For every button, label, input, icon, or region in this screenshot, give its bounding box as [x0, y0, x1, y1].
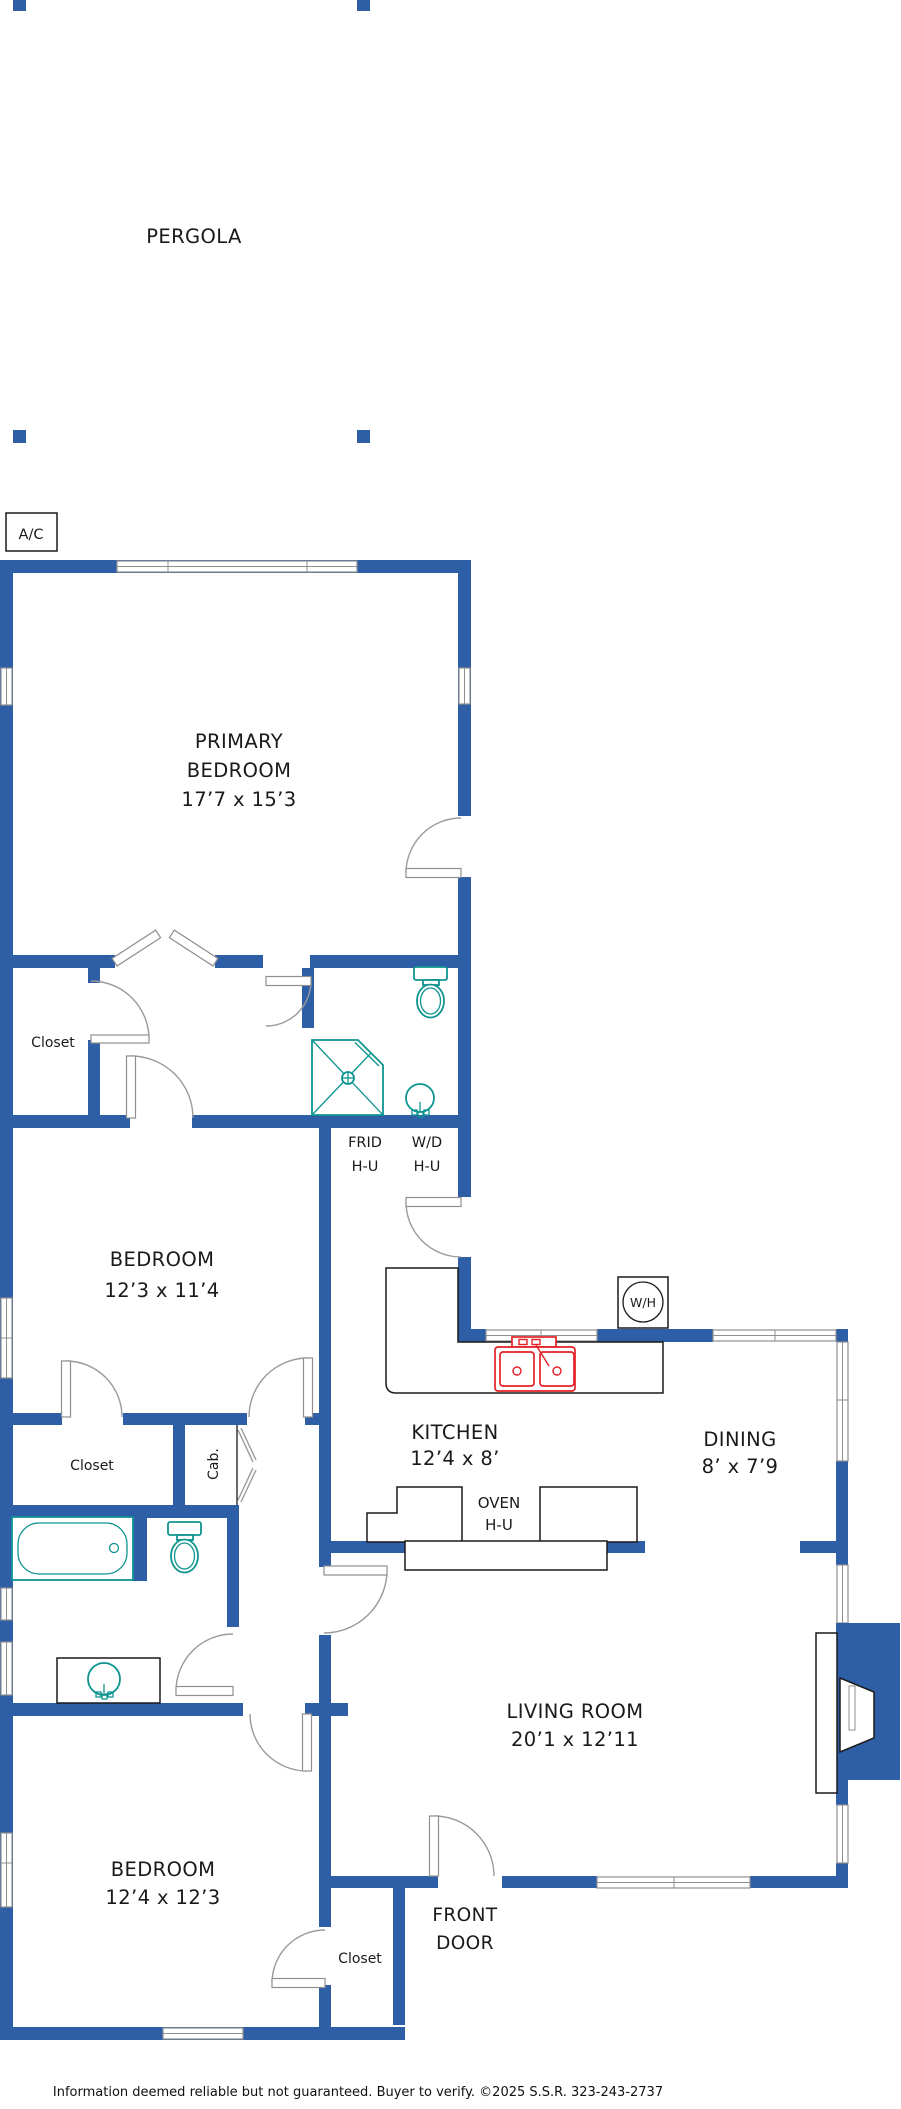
washer-dryer-hookup-label: W/D [412, 1135, 442, 1151]
window [1, 1833, 12, 1907]
window [163, 2028, 243, 2039]
cabinet-label: Cab. [206, 1448, 222, 1480]
disclaimer-text: Information deemed reliable but not guar… [53, 2085, 663, 2100]
window [1, 1642, 12, 1695]
window [1, 1588, 12, 1620]
door [272, 1930, 325, 1988]
primary-bedroom-label: PRIMARY [195, 730, 283, 753]
bathtub-icon [12, 1517, 133, 1580]
washer-dryer-hookup-label: H-U [414, 1159, 441, 1175]
living-room-dims: 20’1 x 12’11 [511, 1728, 639, 1751]
bedroom2-dims: 12’3 x 11’4 [104, 1279, 219, 1302]
dining-dims: 8’ x 7’9 [702, 1455, 779, 1478]
window [837, 1805, 848, 1863]
hall-closet-label: Closet [31, 1035, 75, 1051]
bedroom3-label: BEDROOM [111, 1858, 216, 1881]
door [249, 1358, 313, 1417]
living-room-label: LIVING ROOM [506, 1700, 643, 1723]
bedroom3-dims: 12’4 x 12’3 [105, 1886, 220, 1909]
door [406, 1198, 461, 1258]
primary-bedroom-dims: 17’7 x 15’3 [181, 788, 296, 811]
window [597, 1877, 750, 1888]
primary-bedroom-label: BEDROOM [187, 759, 292, 782]
door [250, 1714, 312, 1771]
labels: PERGOLA A/C PRIMARY BEDROOM 17’7 x 15’3 … [19, 225, 779, 2100]
window [459, 668, 470, 704]
kitchen-label: KITCHEN [411, 1421, 498, 1444]
door [176, 1634, 233, 1696]
window [1, 668, 12, 705]
door [406, 818, 461, 878]
toilet-icon [168, 1522, 201, 1573]
shower-icon [312, 1040, 383, 1115]
mid-closet-label: Closet [70, 1458, 114, 1474]
front-door [430, 1816, 495, 1876]
bedroom2-label: BEDROOM [110, 1248, 215, 1271]
pedestal-sink-icon [406, 1084, 434, 1117]
front-door-label: FRONT [432, 1905, 497, 1926]
entry-closet-label: Closet [338, 1951, 382, 1967]
ac-label: A/C [19, 527, 44, 543]
bifold-door [237, 1425, 256, 1505]
door [62, 1361, 123, 1417]
fireplace-icon [816, 1623, 900, 1793]
window [837, 1342, 848, 1461]
vanity-sink-icon [57, 1658, 160, 1703]
door [324, 1566, 387, 1633]
door [127, 1056, 194, 1118]
window [837, 1565, 848, 1623]
floor-plan-page: PERGOLA A/C PRIMARY BEDROOM 17’7 x 15’3 … [0, 0, 901, 2109]
front-door-label: DOOR [436, 1933, 494, 1954]
window [117, 561, 357, 572]
pergola-label: PERGOLA [146, 225, 242, 248]
fridge-hookup-label: H-U [352, 1159, 379, 1175]
water-heater-label: W/H [630, 1295, 656, 1310]
kitchen-dims: 12’4 x 8’ [410, 1447, 500, 1470]
window [713, 1330, 836, 1341]
dining-label: DINING [703, 1428, 776, 1451]
toilet-icon [414, 967, 447, 1018]
pergola-posts [13, 0, 370, 443]
fridge-hookup-label: FRID [348, 1135, 382, 1151]
window [1, 1298, 12, 1378]
oven-hookup-label: OVEN [478, 1494, 521, 1512]
floor-plan-drawing: PERGOLA A/C PRIMARY BEDROOM 17’7 x 15’3 … [0, 0, 901, 2109]
oven-hookup-label: H-U [485, 1516, 513, 1534]
